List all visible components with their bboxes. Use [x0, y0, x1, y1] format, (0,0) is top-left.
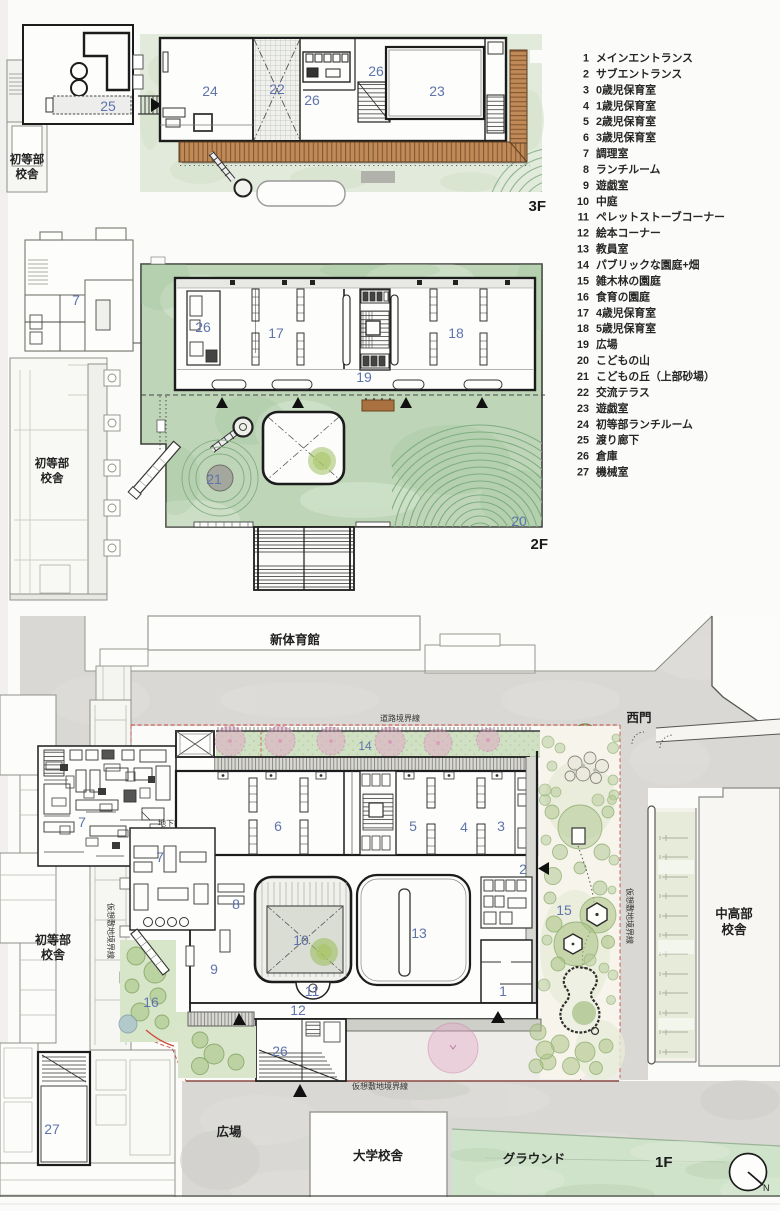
svg-text:初等部ランチルーム: 初等部ランチルーム: [596, 417, 693, 431]
svg-text:仮想敷地境界線: 仮想敷地境界線: [106, 903, 116, 959]
svg-text:遊戯室: 遊戯室: [596, 401, 629, 415]
svg-text:5歳児保育室: 5歳児保育室: [596, 321, 656, 335]
svg-text:仮想敷地境界線: 仮想敷地境界線: [625, 888, 635, 944]
svg-text:4歳児保育室: 4歳児保育室: [596, 305, 656, 319]
svg-text:校舎: 校舎: [721, 922, 747, 937]
svg-text:22: 22: [269, 81, 285, 97]
svg-text:こどもの山: こどもの山: [596, 353, 650, 367]
svg-text:2F: 2F: [530, 536, 548, 553]
svg-text:9: 9: [583, 180, 589, 192]
svg-text:3: 3: [497, 818, 505, 834]
svg-text:11: 11: [305, 983, 320, 999]
svg-text:23: 23: [429, 83, 445, 99]
svg-text:2歳児保育室: 2歳児保育室: [596, 114, 656, 128]
svg-text:10: 10: [577, 196, 589, 208]
svg-text:14: 14: [358, 739, 372, 753]
svg-text:7: 7: [72, 292, 80, 308]
svg-text:24: 24: [202, 83, 218, 99]
svg-text:雑木林の園庭: 雑木林の園庭: [595, 273, 661, 287]
svg-text:調理室: 調理室: [596, 146, 629, 160]
svg-text:23: 23: [577, 403, 589, 415]
svg-text:7: 7: [78, 814, 86, 830]
svg-text:遊戯室: 遊戯室: [596, 178, 629, 192]
svg-text:ランチルーム: ランチルーム: [596, 163, 661, 176]
svg-text:25: 25: [577, 435, 589, 447]
svg-text:8: 8: [232, 896, 240, 912]
svg-text:ペレットストーブコーナー: ペレットストーブコーナー: [596, 210, 725, 224]
svg-text:3歳児保育室: 3歳児保育室: [596, 130, 656, 144]
svg-text:校舎: 校舎: [41, 947, 66, 962]
svg-text:N: N: [763, 1183, 770, 1193]
svg-text:道路境界線: 道路境界線: [380, 713, 420, 723]
svg-text:教員室: 教員室: [595, 242, 629, 256]
svg-text:仮想敷地境界線: 仮想敷地境界線: [352, 1081, 408, 1091]
svg-text:食育の園庭: 食育の園庭: [596, 289, 650, 303]
svg-text:パブリックな園庭+畑: パブリックな園庭+畑: [596, 258, 700, 272]
svg-text:17: 17: [268, 325, 284, 341]
svg-text:サブエントランス: サブエントランス: [596, 66, 682, 80]
svg-text:渡り廊下: 渡り廊下: [596, 433, 639, 447]
svg-text:26: 26: [272, 1043, 288, 1059]
svg-text:12: 12: [577, 228, 589, 240]
svg-text:中庭: 中庭: [596, 194, 618, 208]
svg-text:9: 9: [210, 961, 218, 977]
svg-text:20: 20: [511, 513, 527, 529]
svg-text:12: 12: [290, 1002, 306, 1018]
svg-text:機械室: 機械室: [596, 465, 629, 479]
svg-text:広場: 広場: [596, 337, 618, 351]
svg-text:7: 7: [583, 148, 589, 160]
svg-text:27: 27: [577, 467, 589, 479]
svg-text:1F: 1F: [655, 1154, 673, 1171]
svg-text:初等部: 初等部: [35, 932, 71, 947]
svg-text:西門: 西門: [626, 711, 651, 725]
svg-text:初等部: 初等部: [35, 456, 70, 470]
svg-text:26: 26: [195, 319, 211, 335]
svg-text:17: 17: [577, 307, 589, 319]
svg-text:校舎: 校舎: [41, 471, 64, 485]
svg-text:26: 26: [304, 92, 320, 108]
svg-text:3: 3: [583, 84, 589, 96]
svg-text:8: 8: [583, 164, 589, 176]
svg-text:18: 18: [448, 325, 464, 341]
svg-text:21: 21: [577, 371, 589, 383]
svg-text:3F: 3F: [528, 198, 546, 215]
svg-text:20: 20: [577, 355, 589, 367]
svg-text:14: 14: [577, 260, 589, 272]
svg-text:こどもの丘（上部砂場）: こどもの丘（上部砂場）: [596, 369, 715, 383]
svg-text:13: 13: [411, 925, 427, 941]
svg-text:25: 25: [100, 98, 116, 114]
svg-text:校舎: 校舎: [16, 167, 39, 181]
svg-text:10: 10: [293, 932, 309, 948]
svg-text:5: 5: [409, 818, 417, 834]
svg-text:絵本コーナー: 絵本コーナー: [596, 226, 661, 240]
svg-text:1: 1: [583, 53, 589, 65]
svg-text:24: 24: [577, 419, 589, 431]
svg-text:26: 26: [577, 451, 589, 463]
svg-text:新体育館: 新体育館: [270, 632, 320, 647]
svg-text:0歳児保育室: 0歳児保育室: [596, 82, 656, 96]
svg-text:19: 19: [577, 339, 589, 351]
svg-text:広場: 広場: [216, 1124, 242, 1139]
svg-text:4: 4: [460, 819, 468, 835]
svg-text:7: 7: [156, 849, 164, 865]
svg-text:メインエントランス: メインエントランス: [596, 52, 693, 65]
svg-text:大学校舎: 大学校舎: [353, 1148, 404, 1163]
svg-text:16: 16: [577, 291, 589, 303]
svg-text:18: 18: [577, 323, 589, 335]
svg-text:1: 1: [499, 983, 507, 999]
svg-text:4: 4: [583, 100, 589, 112]
svg-text:5: 5: [583, 116, 589, 128]
svg-text:13: 13: [577, 244, 589, 256]
svg-text:19: 19: [356, 369, 372, 385]
svg-text:倉庫: 倉庫: [595, 449, 618, 463]
svg-text:初等部: 初等部: [10, 152, 45, 166]
svg-text:26: 26: [368, 63, 384, 79]
svg-text:交流テラス: 交流テラス: [596, 385, 650, 399]
svg-text:2: 2: [583, 68, 589, 80]
svg-text:6: 6: [583, 132, 589, 144]
svg-text:1歳児保育室: 1歳児保育室: [596, 98, 656, 112]
svg-text:15: 15: [556, 902, 572, 918]
svg-text:6: 6: [274, 818, 282, 834]
svg-text:11: 11: [578, 212, 589, 224]
svg-text:15: 15: [577, 275, 589, 287]
svg-text:21: 21: [206, 471, 222, 487]
svg-text:16: 16: [143, 994, 159, 1010]
svg-text:中高部: 中高部: [715, 906, 753, 921]
svg-text:22: 22: [577, 387, 589, 399]
svg-text:グラウンド: グラウンド: [503, 1151, 566, 1166]
svg-text:27: 27: [44, 1121, 60, 1137]
